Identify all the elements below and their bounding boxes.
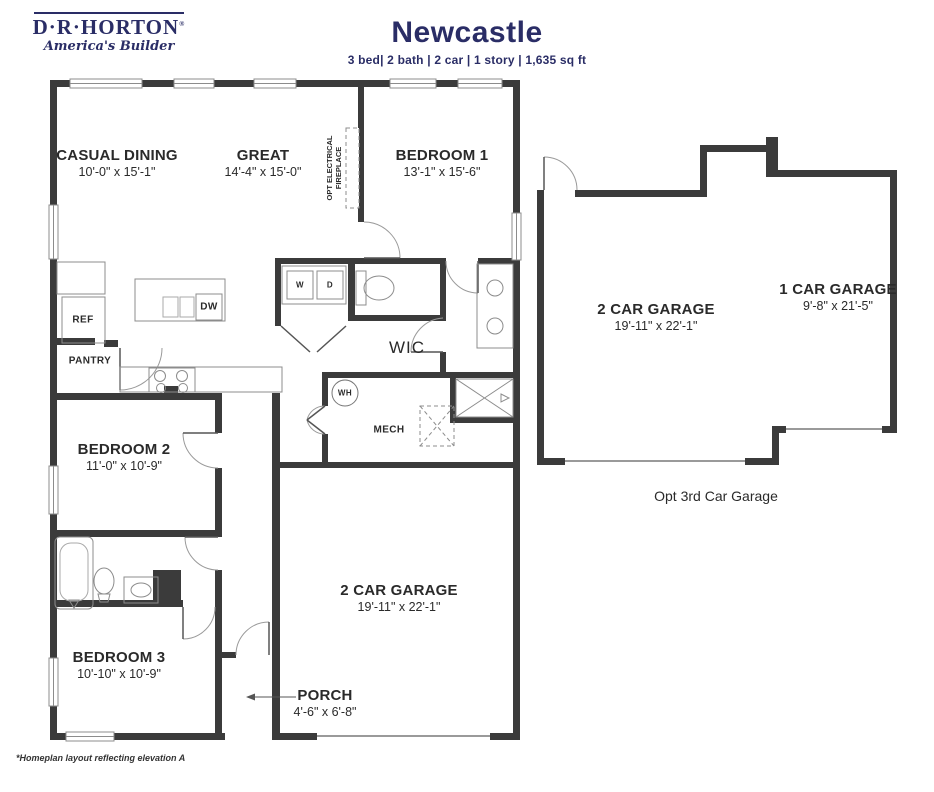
door-arc-front-door	[236, 622, 269, 655]
window	[66, 732, 114, 741]
porch-arrow	[246, 694, 296, 701]
window	[70, 79, 142, 88]
kitchen-sink-icon	[163, 297, 178, 317]
bathtub-icon	[55, 537, 93, 609]
room-label-bedroom1: BEDROOM 1 13'-1" x 15'-6"	[396, 148, 489, 179]
door-arc-pantry	[120, 348, 162, 390]
room-label-garage-opt-1car: 1 CAR GARAGE 9'-8" x 21'-5"	[779, 282, 896, 313]
label-dryer: D	[327, 281, 333, 290]
vanity-double-sink	[477, 264, 513, 348]
room-label-bedroom2: BEDROOM 2 11'-0" x 10'-9"	[78, 442, 171, 473]
kitchen-counter-south	[120, 367, 282, 392]
room-label-garage-main: 2 CAR GARAGE 19'-11" x 22'-1"	[340, 583, 457, 614]
label-opt-electrical-fireplace: OPT ELECTRICAL FIREPLACE	[325, 131, 343, 205]
room-label-garage-opt-2car: 2 CAR GARAGE 19'-11" x 22'-1"	[597, 302, 714, 333]
label-water-heater: WH	[338, 389, 352, 398]
kitchen-sink-icon	[180, 297, 194, 317]
bifold-door	[317, 326, 346, 352]
window	[49, 466, 58, 514]
door-arc-bath1	[446, 261, 478, 293]
room-label-wic: WIC	[389, 338, 425, 358]
window	[458, 79, 502, 88]
door-arc-bath2	[185, 537, 218, 570]
window	[254, 79, 296, 88]
window	[512, 213, 521, 260]
toilet-icon	[94, 568, 114, 602]
floorplan-page: D·R·HORTON® America's Builder Newcastle …	[0, 0, 934, 792]
window	[174, 79, 214, 88]
walls-layer	[50, 80, 897, 740]
label-dishwasher: DW	[200, 302, 217, 313]
label-refrigerator: REF	[72, 315, 93, 326]
fireplace-opt-outline	[346, 128, 359, 208]
shower-icon	[456, 379, 513, 417]
window	[390, 79, 436, 88]
room-label-porch: PORCH 4'-6" x 6'-8"	[294, 688, 357, 719]
footnote-elevation: *Homeplan layout reflecting elevation A	[16, 753, 185, 763]
vanity-sink	[124, 577, 158, 603]
attic-access-icon	[420, 406, 454, 446]
toilet-icon	[356, 271, 394, 305]
kitchen-counter	[57, 262, 105, 294]
door-arc-opt-garage	[544, 157, 577, 190]
door-arc-bedroom1	[364, 222, 400, 258]
washer-dryer-icon	[282, 266, 346, 304]
label-pantry: PANTRY	[69, 356, 111, 367]
window	[49, 658, 58, 706]
door-arc-bedroom3	[183, 607, 215, 639]
room-label-casual-dining: CASUAL DINING 10'-0" x 15'-1"	[56, 148, 178, 179]
door-arc-bedroom2	[183, 433, 218, 468]
room-label-bedroom3: BEDROOM 3 10'-10" x 10'-9"	[73, 650, 166, 681]
label-washer: W	[296, 281, 304, 290]
caption-opt-3rd-car-garage: Opt 3rd Car Garage	[654, 488, 778, 504]
bifold-door	[281, 326, 310, 352]
room-label-great: GREAT 14'-4" x 15'-0"	[225, 148, 302, 179]
window	[49, 205, 58, 259]
room-label-mech: MECH	[373, 425, 404, 436]
